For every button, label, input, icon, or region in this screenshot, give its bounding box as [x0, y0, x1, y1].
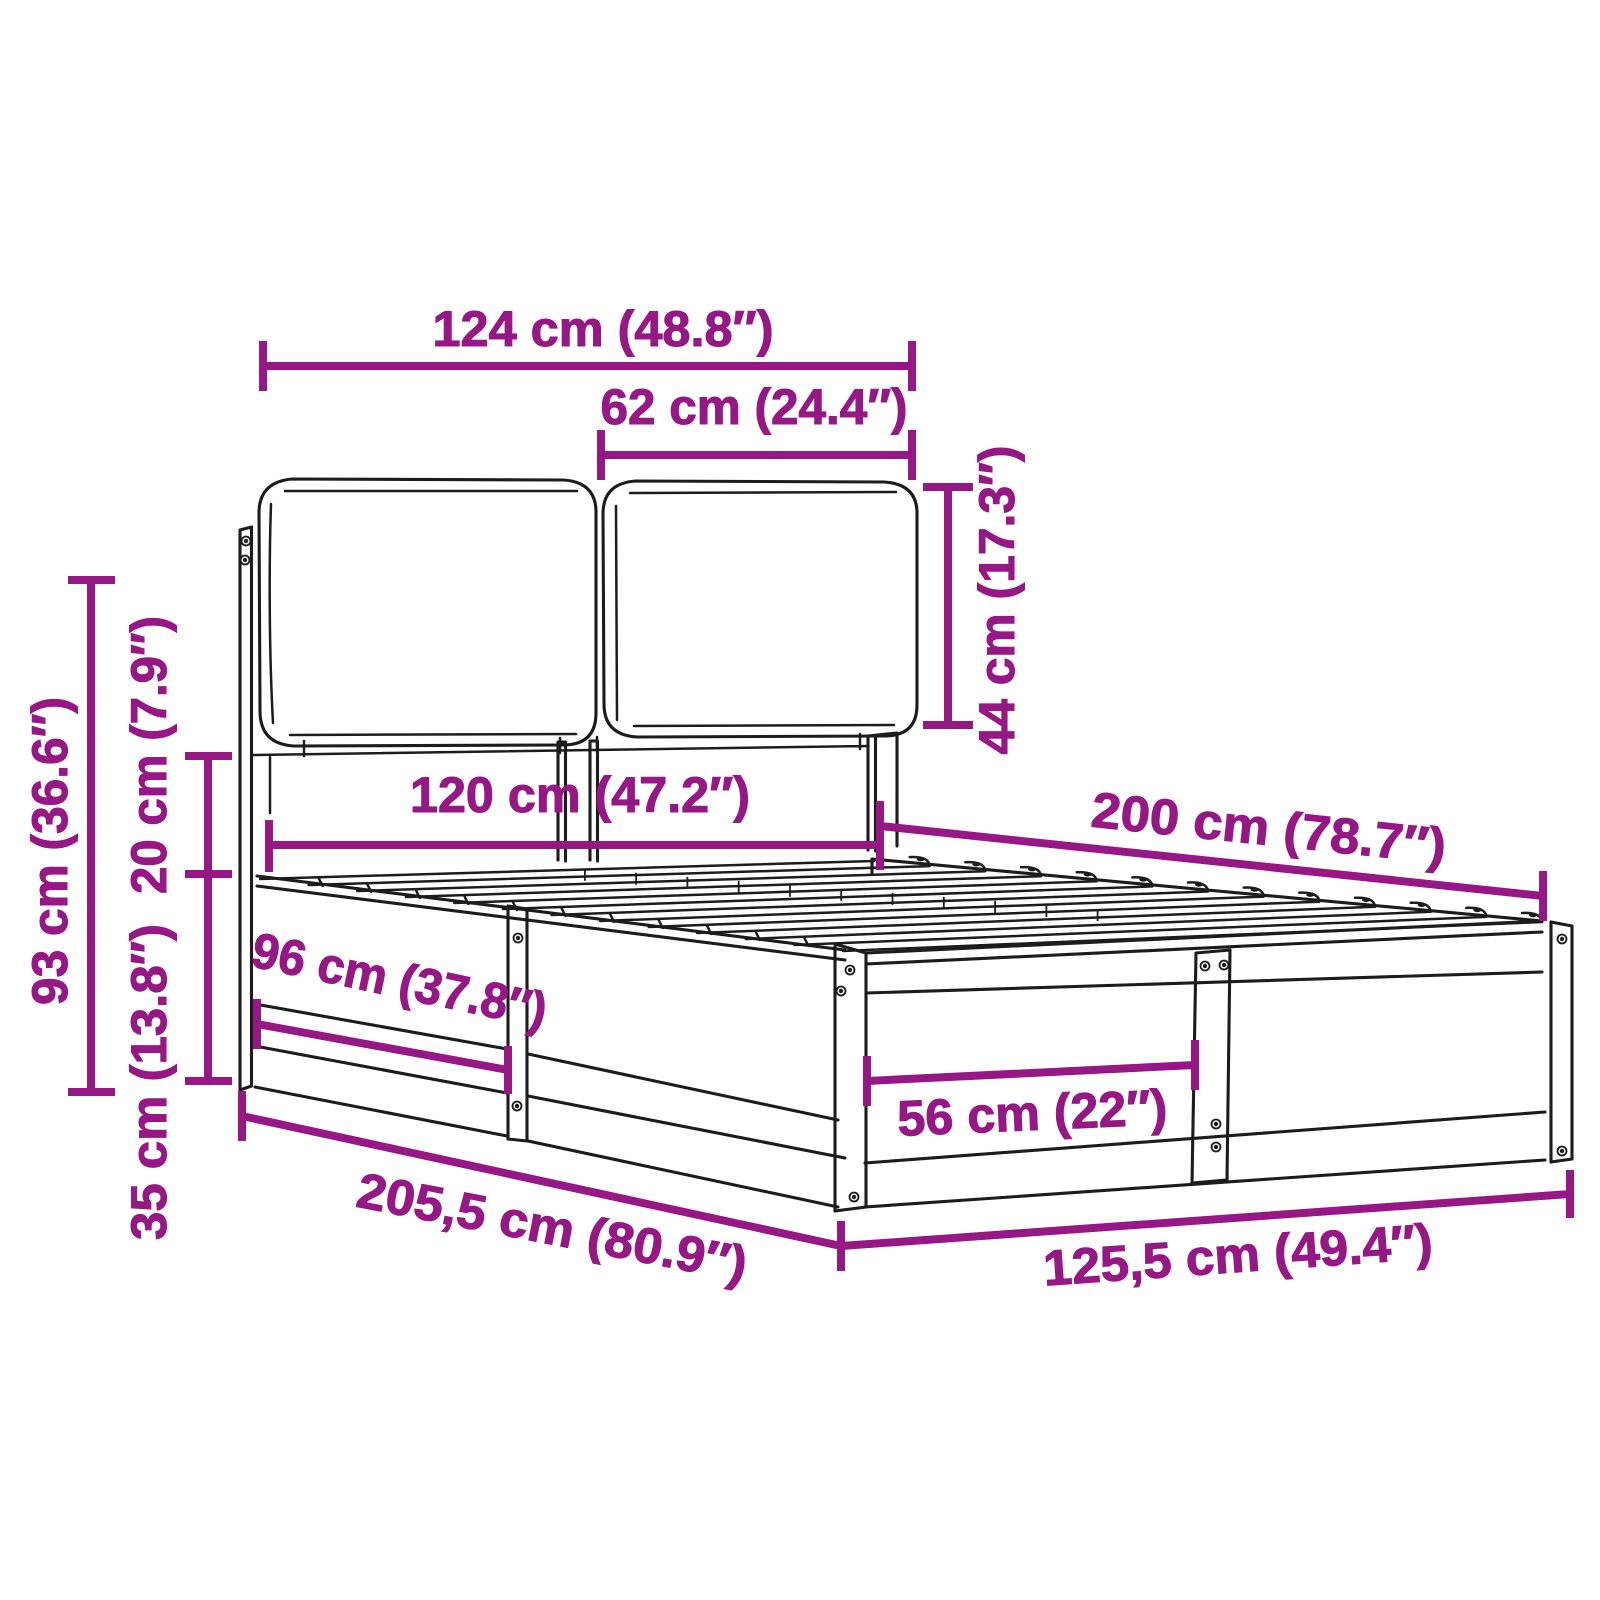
svg-text:20 cm (7.9″): 20 cm (7.9″) — [121, 616, 177, 894]
svg-text:44 cm (17.3″): 44 cm (17.3″) — [969, 446, 1025, 755]
svg-text:93 cm (36.6″): 93 cm (36.6″) — [22, 697, 78, 1005]
svg-text:62 cm (24.4″): 62 cm (24.4″) — [601, 379, 908, 435]
svg-text:35 cm (13.8″): 35 cm (13.8″) — [121, 924, 177, 1240]
svg-text:56 cm (22″): 56 cm (22″) — [896, 1079, 1168, 1147]
svg-text:124 cm (48.8″): 124 cm (48.8″) — [433, 301, 774, 357]
svg-text:120 cm (47.2″): 120 cm (47.2″) — [410, 767, 750, 823]
